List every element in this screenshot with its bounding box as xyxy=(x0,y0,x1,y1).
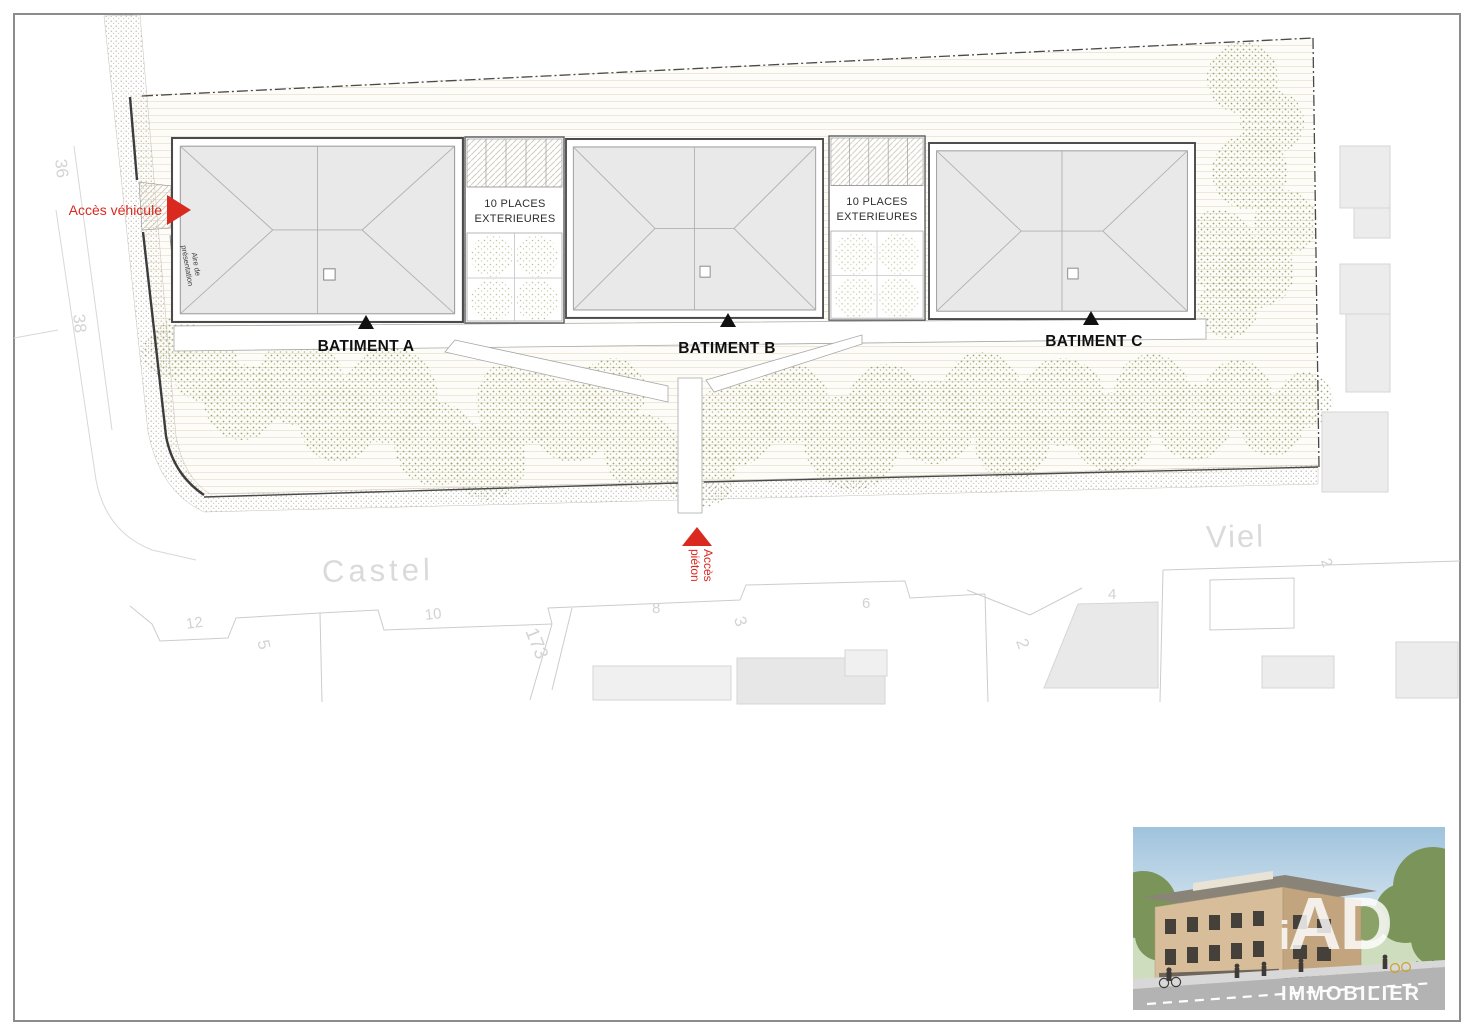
building-c xyxy=(929,143,1195,319)
agency-logo: iAD xyxy=(1279,887,1391,973)
site-plan-page: Accès véhicule Aire de présentation BATI… xyxy=(0,0,1475,1035)
parcel-2b: 2 xyxy=(1333,556,1341,574)
building-b-label: BATIMENT B xyxy=(652,340,802,358)
pedestrian-access-label: Accès piéton xyxy=(714,549,747,577)
parcel-5: 5 xyxy=(272,638,281,658)
parking-1-label: 10 PLACES EXTERIEURES xyxy=(466,197,564,227)
parcel-38: 38 xyxy=(88,313,107,333)
promo-photo: iAD IMMOBILIER xyxy=(1133,827,1445,1010)
parcel-6: 6 xyxy=(862,595,870,613)
parcel-12: 12 xyxy=(185,616,202,634)
parking-2-label: 10 PLACES EXTERIEURES xyxy=(828,195,926,225)
parking-2-line2: EXTERIEURES xyxy=(837,211,918,223)
logo-ad: AD xyxy=(1288,882,1391,965)
parcel-2a: 2 xyxy=(1030,636,1039,656)
parking-module-2 xyxy=(829,136,925,320)
building-a xyxy=(172,138,463,322)
aire-presentation-label: Aire de présentation xyxy=(197,243,238,264)
street-castel-label: Castel xyxy=(322,552,434,590)
logo-i: i xyxy=(1279,914,1288,958)
building-c-label: BATIMENT C xyxy=(1019,333,1169,351)
parcel-4: 4 xyxy=(1108,586,1116,604)
vehicle-access-label: Accès véhicule xyxy=(30,202,162,218)
parcel-10: 10 xyxy=(424,607,441,625)
street-viel-label: Viel xyxy=(1206,518,1266,555)
pieton-line2: piéton xyxy=(688,549,702,582)
pieton-line1: Accès xyxy=(701,549,715,582)
building-b xyxy=(566,139,823,318)
parking-1-line1: 10 PLACES xyxy=(484,198,545,210)
agency-wordmark: IMMOBILIER xyxy=(1281,983,1421,1006)
parking-1-line2: EXTERIEURES xyxy=(475,213,556,225)
parcel-3: 3 xyxy=(748,614,757,634)
parking-2-line1: 10 PLACES xyxy=(846,196,907,208)
building-a-label: BATIMENT A xyxy=(291,338,441,356)
parcel-8: 8 xyxy=(652,600,660,618)
parcel-36: 36 xyxy=(70,158,89,178)
parking-module-1 xyxy=(465,137,564,323)
parcel-173: 173 xyxy=(540,625,572,647)
